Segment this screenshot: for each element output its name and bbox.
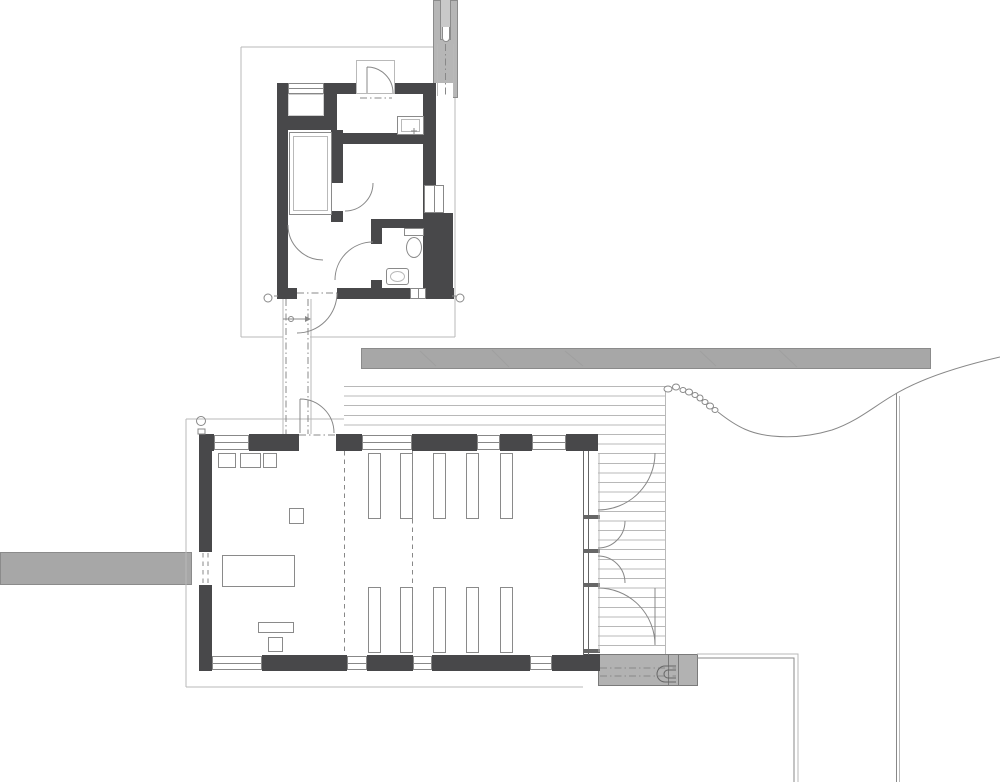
stove-top <box>401 119 420 132</box>
bench <box>258 622 294 633</box>
hall-window-n2 <box>362 435 412 450</box>
hall-glass-wall-east <box>583 451 589 655</box>
cabin-entry-porch <box>356 60 395 94</box>
pew-n2 <box>400 453 413 519</box>
hall-wall-south-2 <box>262 655 347 671</box>
hall-window-n3 <box>477 435 500 450</box>
pew-s3 <box>433 587 446 653</box>
hall-window-s1 <box>212 656 262 670</box>
steps-divider-2 <box>678 654 679 686</box>
hall-wall-north-5 <box>500 434 532 451</box>
hall-wall-north-4 <box>412 434 477 451</box>
west-path-slab <box>0 552 192 585</box>
toilet-tank <box>404 228 424 236</box>
hall-window-n1 <box>214 435 249 450</box>
lectern <box>289 508 304 524</box>
southeast-path <box>697 654 798 782</box>
table <box>222 555 295 587</box>
hall-window-s2 <box>347 656 367 670</box>
cabin-door-opening-south <box>297 288 337 299</box>
glass-mullion-2 <box>583 549 600 553</box>
glass-mullion-4 <box>583 649 600 653</box>
hall-window-s4 <box>530 656 552 670</box>
stone-row <box>664 384 718 413</box>
hall-window-n4 <box>532 435 566 450</box>
hall-window-s3 <box>413 656 432 670</box>
cabin-partition-bath-north <box>371 219 436 228</box>
cabin-partition-bath-west-a <box>371 228 382 244</box>
hall-wall-north-2 <box>249 434 299 451</box>
cabin-partition-niche <box>324 83 337 116</box>
deck-upper-strip <box>344 386 665 434</box>
cabinet-box-2 <box>240 453 261 468</box>
hall-wall-north-6 <box>566 434 598 451</box>
hall-interior <box>199 434 598 671</box>
east-boundary-lines <box>897 393 900 782</box>
pew-s4 <box>466 587 479 653</box>
stool <box>268 637 283 652</box>
glass-mullion-3 <box>583 583 600 587</box>
glass-mullion-1 <box>583 515 600 519</box>
deck-east-edge <box>665 386 666 655</box>
pew-n1 <box>368 453 381 519</box>
cabin-wall-east-bump <box>436 213 453 299</box>
hall-wall-north-3 <box>336 434 362 451</box>
hall-wall-south-3 <box>367 655 413 671</box>
cabin-window-east <box>424 185 444 213</box>
pew-s2 <box>400 587 413 653</box>
cabinet-box-1 <box>218 453 236 468</box>
hall-north-door-arc <box>300 399 334 433</box>
flow-arrow <box>305 316 311 322</box>
pew-s1 <box>368 587 381 653</box>
sink-basin <box>390 271 405 282</box>
hall-wall-west-b <box>199 585 212 671</box>
hall-wall-se-corner <box>583 654 600 671</box>
chimney-flue-outlet <box>442 27 450 42</box>
walkway <box>283 293 337 435</box>
pew-n3 <box>433 453 446 519</box>
hall-wall-west-a <box>199 434 212 552</box>
deck-east-strip <box>588 434 665 655</box>
hall-wall-south-4 <box>432 655 530 671</box>
pew-s5 <box>500 587 513 653</box>
hall-door-opening-west <box>199 552 212 585</box>
cabin-closet-niche <box>288 94 324 116</box>
cabin-partition-bedroom-stub <box>331 211 343 222</box>
site-floor-plan <box>0 0 1000 782</box>
cabinet-box-3 <box>263 453 277 468</box>
pew-n4 <box>466 453 479 519</box>
cabin-partition-niche-south <box>277 116 337 130</box>
north-path-slab <box>361 348 931 369</box>
cabin-window-south <box>410 288 426 299</box>
cabin-partition-bath-west-b <box>371 280 382 299</box>
bed-mattress <box>293 136 328 211</box>
pew-n5 <box>500 453 513 519</box>
toilet-bowl <box>406 237 422 258</box>
steps-divider-1 <box>668 654 669 686</box>
cabin-window-north <box>288 83 324 94</box>
entry-steps <box>598 654 698 686</box>
